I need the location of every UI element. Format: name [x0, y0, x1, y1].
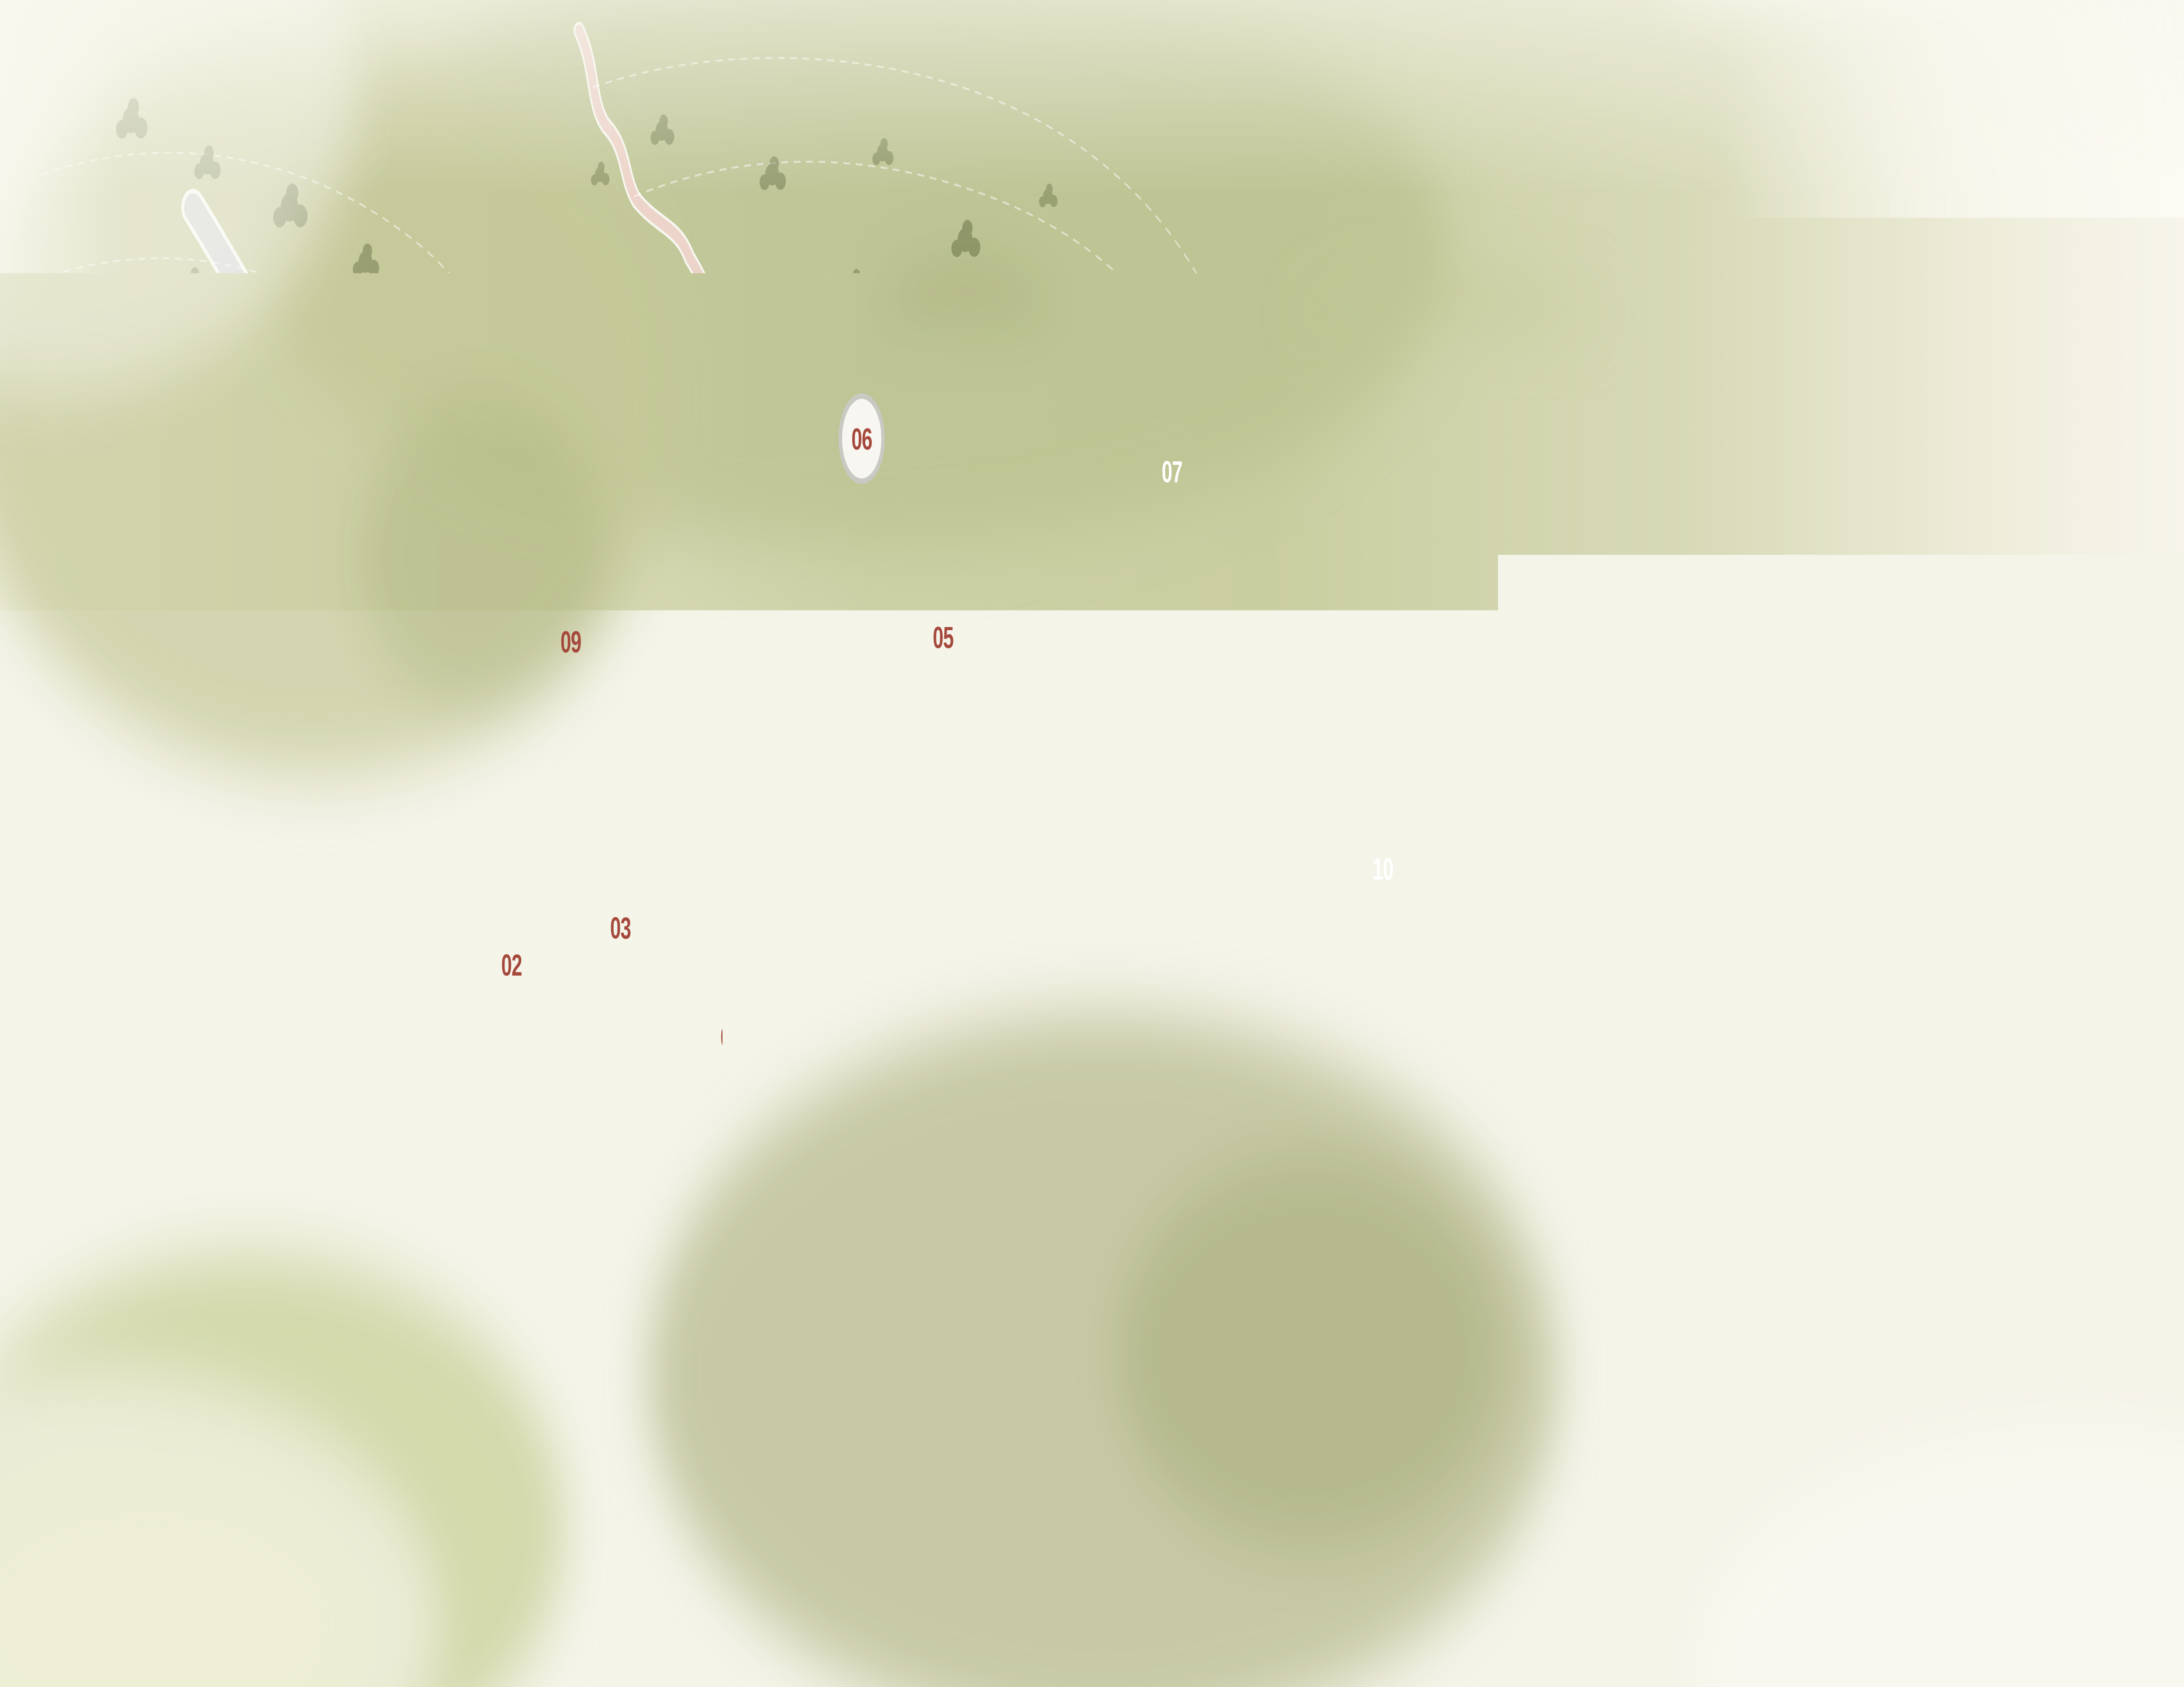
legend-item-label: PERMEABLE PARKING LOT	[1849, 1101, 2056, 1128]
legend-item-number: 07	[2085, 1320, 2102, 1347]
legend-item-label: NATIVE PROTECTED GAMBLE OAK	[1790, 1356, 2056, 1383]
scale-tick-label: 60	[1962, 1530, 1973, 1546]
legend-item-label: ENTRY CANYON	[1931, 1174, 2056, 1201]
legend-item-number: 02	[2085, 1137, 2102, 1164]
legend-item-number: 04	[2085, 1210, 2102, 1237]
plan-label-08: 08	[1264, 1466, 1284, 1500]
plan-label-03: 03	[610, 911, 631, 945]
legend-item-label: DROP-OFF	[1973, 1137, 2056, 1164]
plan-label-01: 01	[684, 1217, 705, 1251]
legend-item-number: 01	[2085, 1101, 2102, 1128]
scale-tick-label: 120	[2031, 1530, 2047, 1546]
legend-item-label: BONNEVILLE TRAIL	[1907, 1210, 2056, 1237]
plan-label-04: 04	[720, 1021, 742, 1055]
legend-item-label: CONVERSATION CIRCLE	[1868, 1283, 2056, 1310]
legend-item-label: RESTORED GRASSLAND	[1866, 1320, 2056, 1347]
legend-item-number: 03	[2085, 1174, 2102, 1201]
site-plan-map: 5105 5100 5033 5032 5031 5030 5020 5015 …	[0, 0, 2184, 1687]
plan-label-09: 09	[560, 625, 581, 659]
plan-label-05: 05	[933, 621, 953, 655]
legend-item-number: 10	[2085, 1429, 2102, 1456]
legend-item-label: LAND TERRACE	[1934, 1247, 2056, 1274]
legend-item-number: 05	[2085, 1247, 2102, 1274]
scale-tick-label: 0	[1894, 1530, 1900, 1546]
legend-item-number: 09	[2085, 1393, 2102, 1420]
legend-item-number: 06	[2085, 1283, 2102, 1310]
legend-item-label: GREEN ROOF + SOLAR ARRAY	[1821, 1393, 2056, 1420]
plan-label-07: 07	[1161, 455, 1182, 489]
plan-label-10: 10	[1372, 852, 1393, 887]
north-arrow-icon	[2081, 1485, 2108, 1535]
legend-item-number: 08	[2085, 1356, 2102, 1383]
plan-label-06: 06	[851, 422, 872, 456]
plan-label-02: 02	[501, 949, 522, 983]
legend-item-label: TRAILS	[2000, 1429, 2056, 1456]
